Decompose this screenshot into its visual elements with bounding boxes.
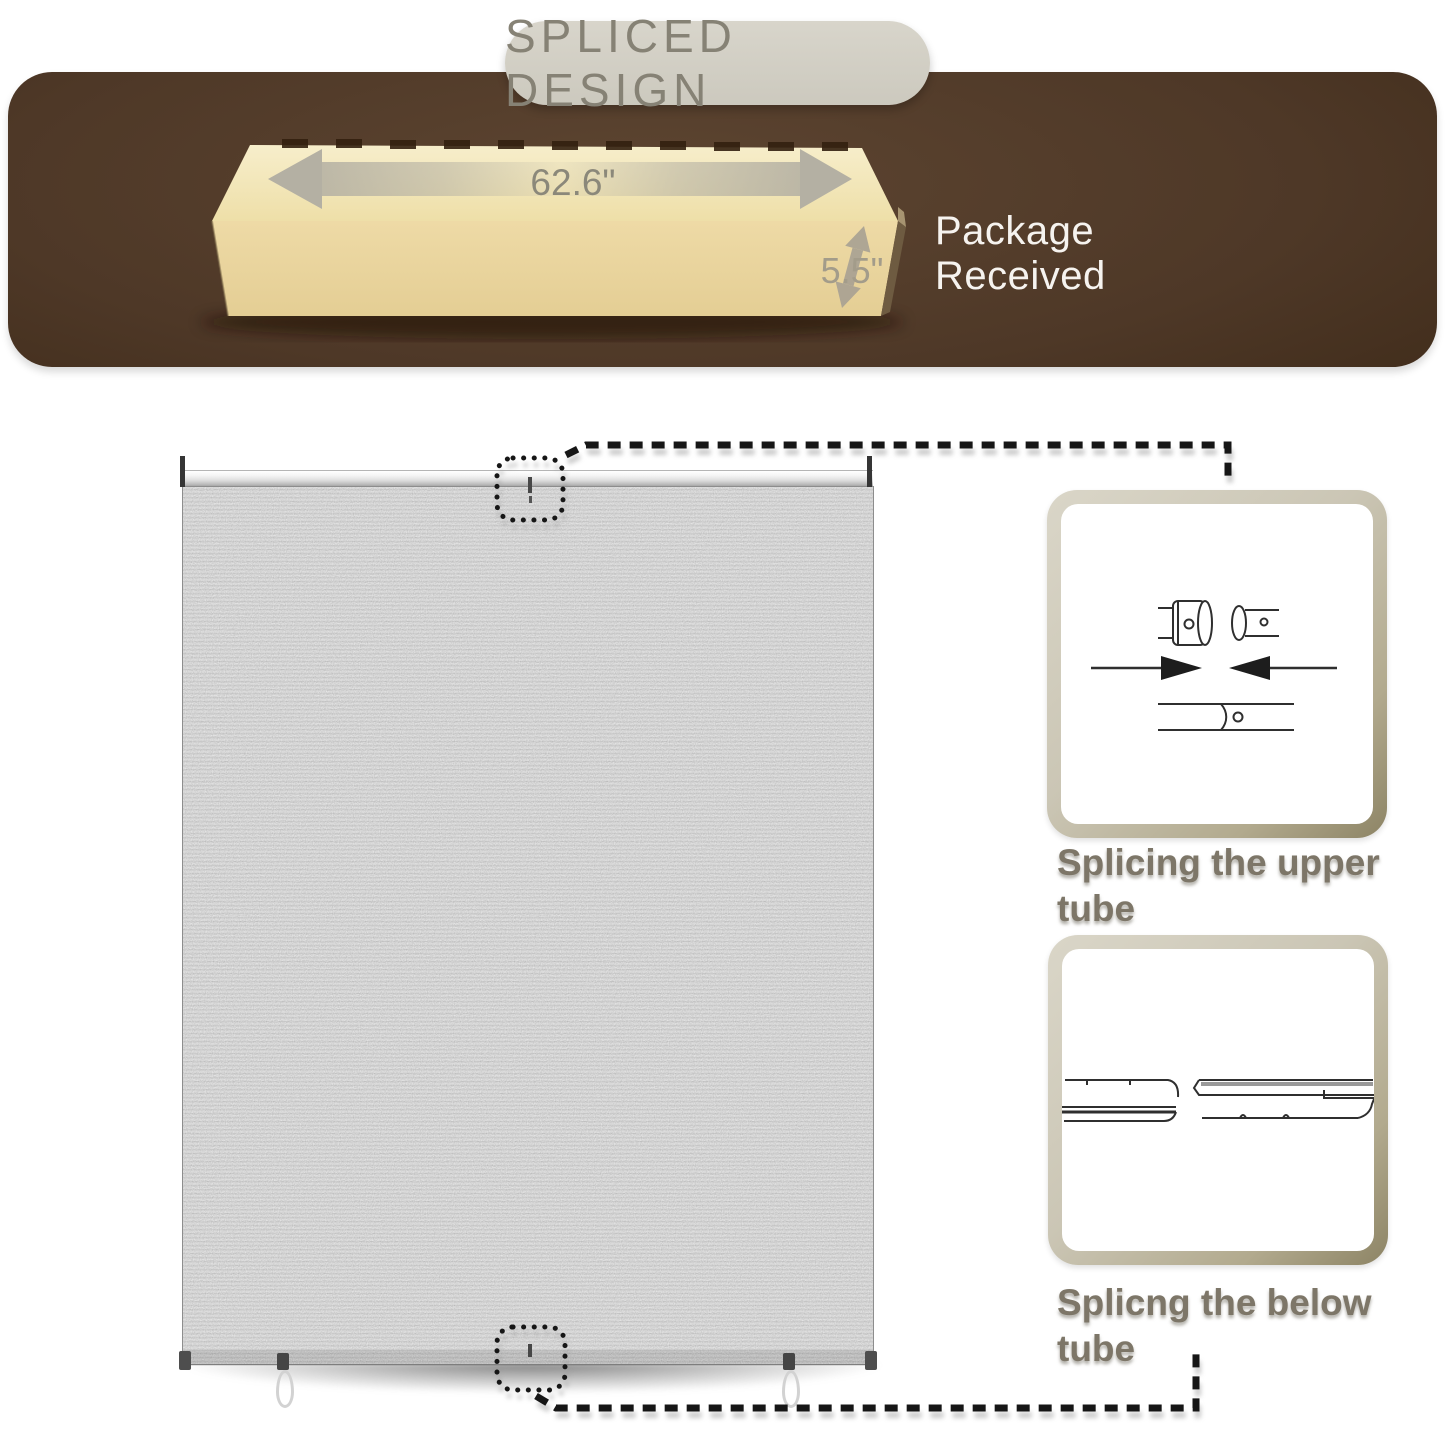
bottom-bar-right-cap (865, 1351, 877, 1370)
upper-tube-splice-seam-dot (529, 496, 532, 503)
tube-right-pin (867, 456, 872, 487)
page-title: SPLICED DESIGN (505, 9, 930, 117)
bottom-bar-right-clip (783, 1353, 795, 1370)
fabric-weave-texture (183, 487, 873, 1364)
upper-caption-line1: Splicing the upper (1057, 840, 1397, 886)
lower-splice-callout-panel (1062, 949, 1374, 1251)
upper-tube-splice-seam (528, 477, 532, 493)
upper-callout-caption: Splicing the upper tube (1057, 840, 1397, 933)
upper-tube-diagram (1061, 504, 1373, 824)
lower-callout-caption: Splicng the below tube (1057, 1280, 1397, 1373)
shade-fabric (183, 487, 873, 1364)
left-hook (276, 1370, 294, 1408)
package-status-label: Package Received (935, 209, 1275, 299)
box-height-label: 5.5" (810, 250, 894, 292)
lower-caption-line1: Splicng the below (1057, 1280, 1397, 1326)
lower-caption-line2: tube (1057, 1326, 1397, 1372)
right-hook (782, 1370, 800, 1408)
title-badge: SPLICED DESIGN (505, 21, 930, 105)
bottom-bar-left-cap (179, 1351, 191, 1370)
bottom-rail-diagram (1062, 949, 1374, 1251)
upper-caption-line2: tube (1057, 886, 1397, 932)
box-width-label: 62.6" (498, 162, 648, 204)
lower-splice-callout (1048, 935, 1388, 1265)
upper-splice-callout-panel (1061, 504, 1373, 824)
carton-front-face (212, 221, 898, 316)
tube-left-pin (180, 456, 185, 487)
bottom-bar-splice-seam (528, 1344, 532, 1357)
upper-splice-callout (1047, 490, 1387, 838)
bottom-bar-left-clip (277, 1353, 289, 1370)
product-infographic: SPLICED DESIGN (0, 0, 1445, 1445)
